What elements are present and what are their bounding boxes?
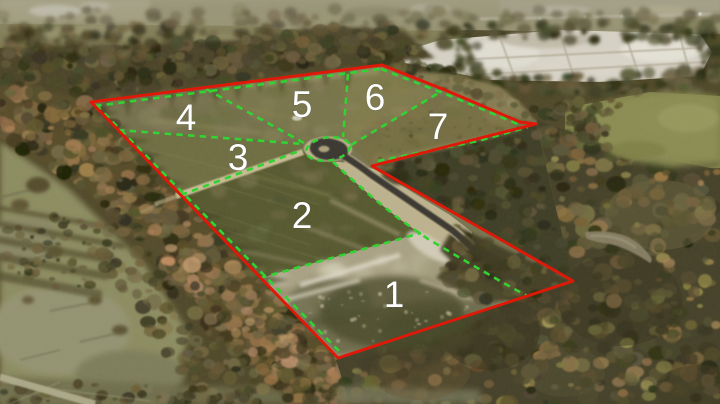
svg-text:5: 5: [292, 84, 313, 125]
svg-text:6: 6: [365, 77, 386, 118]
svg-text:3: 3: [228, 137, 249, 178]
svg-text:7: 7: [428, 106, 449, 147]
svg-text:1: 1: [384, 274, 405, 315]
svg-text:2: 2: [292, 195, 313, 236]
svg-text:4: 4: [176, 97, 197, 138]
